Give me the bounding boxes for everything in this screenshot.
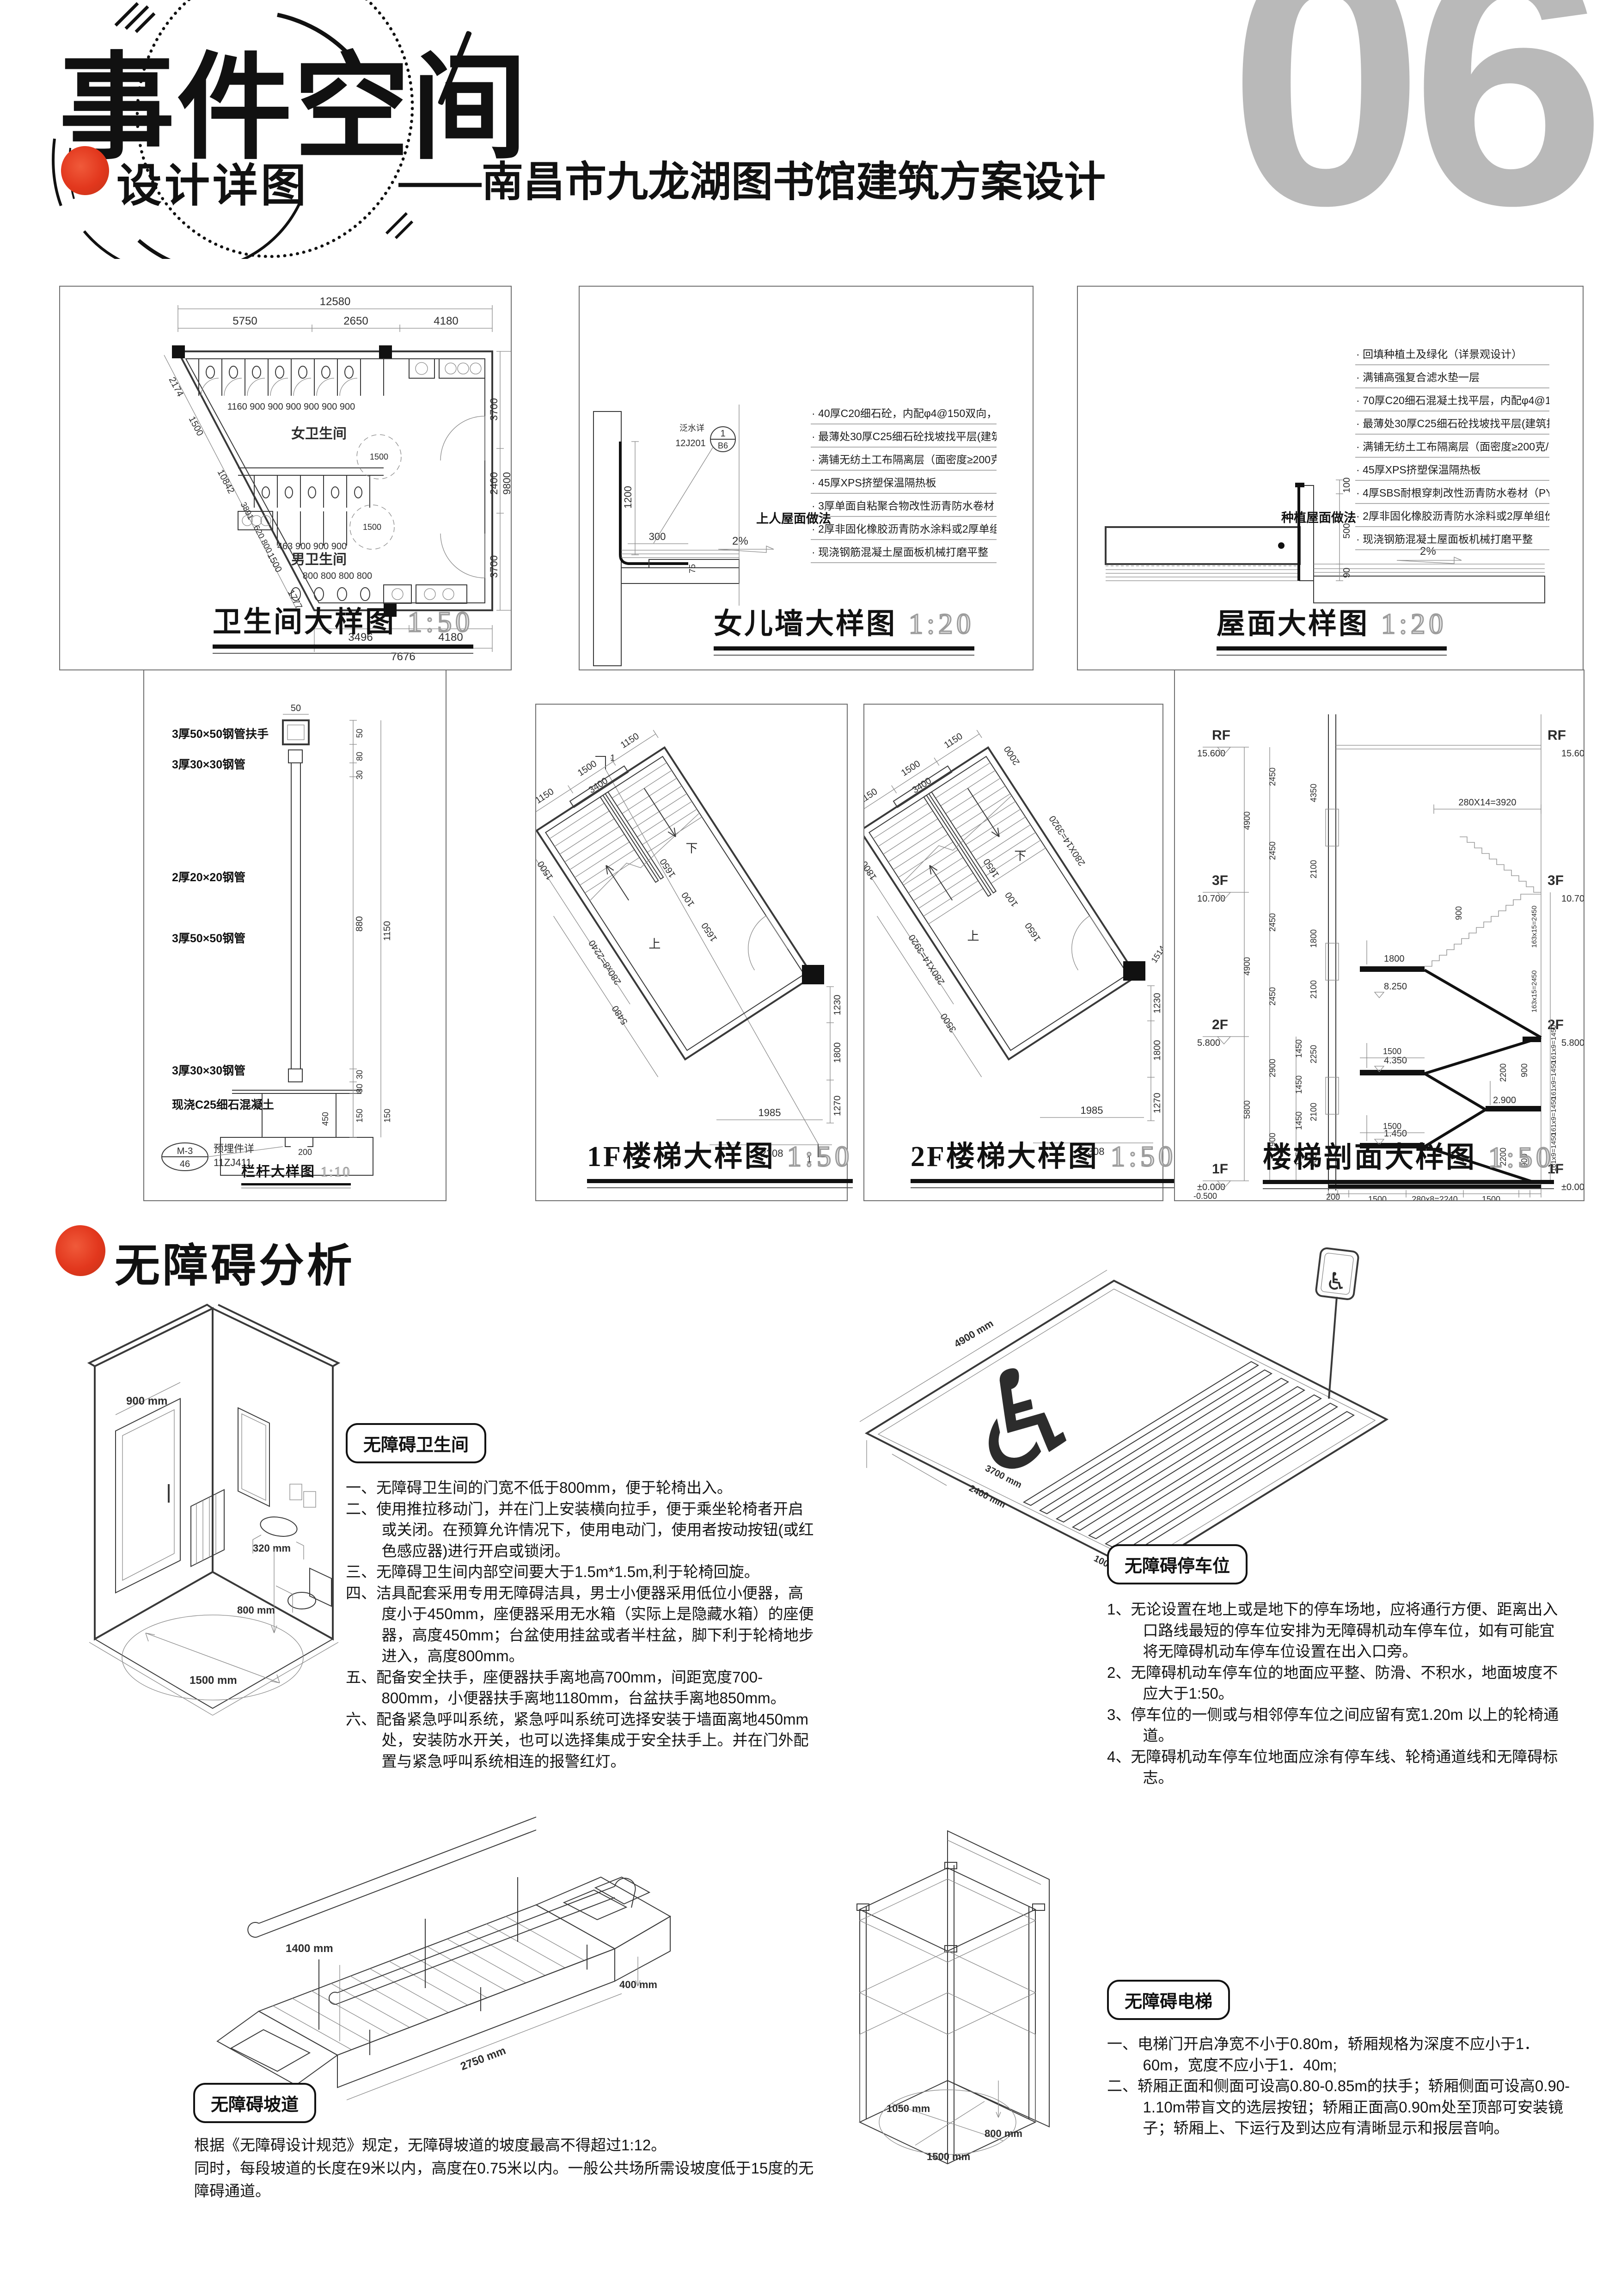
svg-text:1500: 1500	[536, 859, 555, 882]
svg-text:2400: 2400	[488, 472, 500, 495]
svg-text:下: 下	[686, 841, 698, 855]
svg-text:150: 150	[355, 1109, 364, 1123]
svg-text:1985: 1985	[759, 1107, 781, 1118]
railing-label-1: 3厚50×50钢管扶手	[172, 725, 269, 742]
svg-text:1270: 1270	[832, 1096, 843, 1117]
roof-side-label: 种植屋面做法	[1281, 508, 1356, 526]
svg-text:900: 900	[1454, 906, 1463, 920]
svg-text:880: 880	[355, 916, 365, 932]
drawing-frame-stair-1f: 1 1 上 下 1150 1500 1150 3400	[535, 704, 848, 1201]
svg-text:150: 150	[383, 1109, 392, 1123]
ramp-note-line-1: 根据《无障碍设计规范》规定，无障碍坡道的坡度最高不得超过1:12。	[194, 2134, 818, 2157]
svg-text:161x9=1450: 161x9=1450	[1550, 1061, 1558, 1099]
svg-text:1200: 1200	[622, 486, 634, 509]
svg-text:5.800: 5.800	[1561, 1038, 1584, 1048]
svg-text:10842: 10842	[215, 468, 237, 495]
accessible-toilet-isometric: 900 mm 1500 mm 320 mm 800 mm	[76, 1290, 349, 1817]
note-item: 一、电梯门开启净宽不小于0.80m，轿厢规格为深度不应小于1．60m，宽度不应小…	[1107, 2033, 1574, 2075]
section-title-details: 设计详图	[116, 149, 309, 215]
svg-text:3F: 3F	[1212, 873, 1228, 888]
svg-text:1500 mm: 1500 mm	[927, 2151, 970, 2162]
railing-label-2: 3厚30×30钢管	[172, 755, 245, 772]
wheelchair-icon: ♿	[966, 1324, 1088, 1511]
svg-text:1800: 1800	[832, 1043, 843, 1063]
svg-text:200: 200	[298, 1148, 312, 1157]
note-item: 2厚非固化橡胶沥青防水涂料或2厚单组份聚氨酯防水涂料	[1355, 504, 1549, 527]
svg-text:1: 1	[720, 429, 725, 439]
svg-text:2F: 2F	[1212, 1017, 1228, 1032]
note-item: 一、无障碍卫生间的门宽不低于800mm，便于轮椅出入。	[346, 1477, 817, 1498]
svg-text:320 mm: 320 mm	[253, 1542, 291, 1554]
svg-text:1150: 1150	[382, 921, 392, 941]
svg-text:2900: 2900	[1268, 1059, 1277, 1077]
svg-text:2450: 2450	[1268, 987, 1277, 1006]
svg-text:2450: 2450	[1268, 767, 1277, 786]
note-item: 二、使用推拉移动门，并在门上安装横向拉手，便于乘坐轮椅者开启或关闭。在预算允许情…	[346, 1498, 817, 1562]
roof-notes-list: 回填种植土及绿化（详景观设计）满铺高强复合滤水垫一层70厚C20细石混凝土找平层…	[1355, 342, 1549, 550]
note-item: 1、无论设置在地上或是地下的停车场地，应将通行方便、距离出入口路线最短的停车位安…	[1107, 1599, 1569, 1662]
drawing-title-railing: 栏杆大样图1:10	[241, 1160, 351, 1188]
svg-text:1650: 1650	[1023, 921, 1043, 943]
svg-text:1450: 1450	[1294, 1075, 1303, 1094]
svg-text:女卫生间: 女卫生间	[291, 426, 347, 442]
note-item: 四、洁具配套采用专用无障碍洁具，男士小便器采用低位小便器，高度小于450mm，座…	[346, 1583, 817, 1667]
radiator	[191, 1490, 224, 1566]
svg-text:M-3: M-3	[177, 1146, 193, 1156]
svg-text:30: 30	[355, 770, 364, 780]
svg-text:上: 上	[967, 929, 979, 943]
svg-text:1985: 1985	[1081, 1105, 1103, 1116]
svg-text:5480: 5480	[610, 1004, 630, 1026]
cage-posts	[857, 1862, 1045, 2164]
stair-section-drawing: RF15.600 3F10.700 2F5.800 1F±0.000 -0.50…	[1175, 670, 1584, 1200]
svg-text:1500: 1500	[1383, 1122, 1401, 1131]
svg-text:泛水详: 泛水详	[679, 424, 704, 433]
note-item: 回填种植土及绿化（详景观设计）	[1355, 342, 1549, 365]
section-title-accessibility: 无障碍分析	[115, 1229, 355, 1295]
label-accessible-elevator: 无障碍电梯	[1107, 1980, 1230, 2020]
svg-text:90: 90	[1342, 568, 1352, 578]
svg-text:280X14=3920: 280X14=3920	[1458, 798, 1516, 808]
svg-text:1400 mm: 1400 mm	[286, 1942, 333, 1955]
svg-text:1150: 1150	[864, 786, 879, 806]
svg-text:800 mm: 800 mm	[237, 1604, 275, 1616]
svg-text:1500: 1500	[363, 522, 381, 532]
svg-text:280x8=2240: 280x8=2240	[587, 938, 624, 987]
note-item: 40厚C20细石砼，内配φ4@150双向，分隔缝距离≤3m	[811, 401, 997, 424]
drawing-frame-stair-2f: 上 下 1150 1500 1150 3400 2000 280X14=3920…	[863, 704, 1163, 1201]
svg-text:1514: 1514	[1150, 944, 1162, 964]
svg-text:4900 mm: 4900 mm	[952, 1317, 996, 1350]
svg-text:1800: 1800	[1309, 929, 1318, 948]
svg-text:1F: 1F	[1212, 1161, 1228, 1177]
svg-text:1450: 1450	[1294, 1111, 1303, 1130]
svg-text:1650: 1650	[658, 857, 678, 879]
parapet-side-label: 上人屋面做法	[756, 509, 831, 527]
svg-text:3891: 3891	[239, 500, 255, 521]
svg-text:50: 50	[291, 703, 301, 713]
ramp-note-line-2: 同时，每段坡道的长度在9米以内，高度在0.75米以内。一般公共场所需设坡度低于1…	[194, 2157, 818, 2203]
svg-text:5800: 5800	[1242, 1100, 1252, 1119]
svg-text:RF: RF	[1548, 728, 1566, 743]
svg-text:8.250: 8.250	[1384, 982, 1407, 992]
svg-text:280x8=2240: 280x8=2240	[1412, 1195, 1458, 1200]
svg-text:3F: 3F	[1548, 873, 1564, 888]
svg-text:1500: 1500	[576, 759, 599, 779]
note-item: 最薄处30厚C25细石砼找坡找平层(建筑找坡2%)	[811, 424, 997, 448]
svg-text:4900: 4900	[1242, 957, 1252, 976]
note-item: 满铺高强复合滤水垫一层	[1355, 365, 1549, 388]
svg-text:900: 900	[1520, 1063, 1529, 1077]
svg-text:1800: 1800	[1384, 954, 1405, 964]
drawing-frame-toilet-plan: 12580 5750 2650 4180 1160 900 900 900 90…	[59, 286, 512, 670]
svg-text:1500: 1500	[899, 759, 922, 779]
svg-text:12J201: 12J201	[675, 438, 706, 448]
accessible-parking-isometric: ♿ 4900 mm 3700 mm 2400 mm 1000 mm ♿	[832, 1237, 1419, 1579]
toilet	[276, 1568, 331, 1613]
svg-text:±0.000: ±0.000	[1197, 1182, 1225, 1192]
label-accessible-parking: 无障碍停车位	[1107, 1544, 1248, 1584]
drawing-title-parapet: 女儿墙大样图1:20	[714, 600, 974, 656]
accessible-toilet-notes: 一、无障碍卫生间的门宽不低于800mm，便于轮椅出入。二、使用推拉移动门，并在门…	[346, 1477, 817, 1772]
note-item: 最薄处30厚C25细石砼找坡找平层(建筑找坡2%)	[1355, 411, 1549, 435]
svg-text:4350: 4350	[1309, 784, 1318, 802]
drawing-title-toilet-plan: 卫生间大样图1:50	[213, 598, 473, 654]
railing-label-3: 2厚20×20钢管	[172, 868, 245, 885]
svg-text:1270: 1270	[1152, 1093, 1162, 1114]
svg-text:161x9=1450: 161x9=1450	[1550, 1097, 1558, 1136]
svg-text:1500: 1500	[1383, 1047, 1401, 1056]
railing-label-4: 3厚50×50钢管	[172, 929, 245, 946]
stair-1f-drawing: 1 1 上 下 1150 1500 1150 3400	[536, 705, 847, 1200]
svg-text:1500: 1500	[1482, 1195, 1500, 1200]
svg-text:100: 100	[680, 890, 697, 909]
svg-text:50: 50	[355, 729, 364, 738]
svg-text:预埋件详: 预埋件详	[214, 1143, 254, 1154]
railing-label-5: 3厚30×30钢管	[172, 1062, 245, 1078]
note-item: 三、无障碍卫生间内部空间要大于1.5m*1.5m,利于轮椅回旋。	[346, 1561, 817, 1583]
note-item: 现浇钢筋混凝土屋面板机械打磨平整	[1355, 527, 1549, 550]
svg-text:1230: 1230	[832, 995, 843, 1016]
svg-text:10.700: 10.700	[1561, 894, 1584, 904]
svg-text:2200: 2200	[1499, 1063, 1508, 1082]
drawing-title-stair-2f: 2F楼梯大样图1:50	[911, 1133, 1176, 1188]
svg-text:1650: 1650	[982, 857, 1002, 879]
svg-text:2174: 2174	[167, 375, 185, 399]
note-item: 4厚SBS耐根穿刺改性沥青防水卷材（PY类）	[1355, 481, 1549, 504]
svg-text:1800: 1800	[864, 859, 879, 882]
note-item: 五、配备安全扶手，座便器扶手离地高700mm，间距宽度700-800mm，小便器…	[346, 1667, 817, 1709]
svg-text:4180: 4180	[434, 315, 458, 327]
note-item: 二、轿厢正面和侧面可设高0.80-0.85m的扶手；轿厢侧面可设高0.90-1.…	[1107, 2075, 1574, 2139]
svg-text:30: 30	[355, 1070, 364, 1079]
svg-text:400 mm: 400 mm	[619, 1979, 657, 1990]
drawing-frame-parapet: 1200 300 75 2% 1 B6 12J201 泛水详 40厚C20细石砼…	[579, 286, 1034, 670]
note-item: 满铺无纺土工布隔离层（面密度≥200克/平米）	[1355, 435, 1549, 458]
drawing-title-stair-section: 楼梯剖面大样图1:50	[1263, 1134, 1554, 1189]
svg-text:80: 80	[355, 1084, 364, 1093]
svg-text:240: 240	[1529, 1199, 1542, 1200]
svg-text:240: 240	[1336, 1199, 1350, 1200]
svg-text:10.700: 10.700	[1197, 894, 1225, 904]
accessible-elevator-isometric: 1050 mm 1500 mm 800 mm	[832, 1803, 1100, 2242]
railing-label-6: 现浇C25细石混凝土	[172, 1096, 274, 1112]
svg-text:3400: 3400	[587, 776, 610, 796]
note-item: 现浇钢筋混凝土屋面板机械打磨平整	[811, 540, 997, 563]
parking-sign: ♿	[1315, 1247, 1359, 1399]
section-red-stamp-2	[52, 1222, 109, 1279]
svg-text:463 900 900 900: 463 900 900 900	[277, 541, 347, 552]
svg-text:2250: 2250	[1309, 1045, 1318, 1063]
drawing-frame-roof: 100 500 90 2% 回填种植土及绿化（详景观设计）满铺高强复合滤水垫一层…	[1077, 286, 1584, 670]
svg-text:12580: 12580	[320, 295, 351, 308]
svg-text:2000: 2000	[1002, 744, 1022, 767]
svg-text:163x15=2450: 163x15=2450	[1530, 906, 1538, 948]
svg-text:15.600: 15.600	[1197, 749, 1225, 759]
stair-2f-drawing: 上 下 1150 1500 1150 3400 2000 280X14=3920…	[864, 705, 1162, 1200]
svg-text:2.900: 2.900	[1493, 1095, 1516, 1105]
note-item: 2、无障碍机动车停车位的地面应平整、防滑、不积水，地面坡度不应大于1:50。	[1107, 1662, 1569, 1704]
svg-text:2100: 2100	[1309, 860, 1318, 878]
svg-text:5.800: 5.800	[1197, 1038, 1220, 1048]
drawing-frame-railing: 50 50 80 30 880 30 80 150 1150 150 450 2…	[143, 669, 447, 1201]
svg-text:3700: 3700	[488, 398, 500, 421]
accessible-elevator-notes: 一、电梯门开启净宽不小于0.80m，轿厢规格为深度不应小于1．60m，宽度不应小…	[1107, 2033, 1574, 2139]
svg-text:800 800 800 800: 800 800 800 800	[303, 571, 372, 581]
svg-text:46: 46	[180, 1159, 190, 1169]
svg-text:800 mm: 800 mm	[985, 2128, 1022, 2139]
drawing-title-stair-1f: 1F楼梯大样图1:50	[587, 1133, 853, 1188]
svg-text:900 mm: 900 mm	[126, 1395, 167, 1407]
svg-text:300: 300	[649, 531, 666, 542]
svg-text:B6: B6	[718, 441, 728, 450]
drawing-frame-stair-section: RF15.600 3F10.700 2F5.800 1F±0.000 -0.50…	[1174, 669, 1584, 1201]
parapet-notes-list: 40厚C20细石砼，内配φ4@150双向，分隔缝距离≤3m最薄处30厚C25细石…	[811, 401, 997, 563]
svg-text:下: 下	[1014, 849, 1026, 863]
svg-text:1500 mm: 1500 mm	[190, 1674, 237, 1687]
svg-text:3700: 3700	[488, 555, 500, 578]
svg-text:2100: 2100	[1309, 1103, 1318, 1121]
note-item: 满铺无纺土工布隔离层（面密度≥200克/平米）	[811, 448, 997, 471]
svg-text:2%: 2%	[732, 535, 748, 547]
svg-text:1500: 1500	[265, 551, 284, 574]
svg-text:1150: 1150	[619, 731, 641, 750]
svg-text:450: 450	[321, 1112, 330, 1126]
svg-text:1150: 1150	[536, 786, 556, 806]
svg-text:280X14=3920: 280X14=3920	[907, 933, 947, 987]
handrails	[248, 1817, 635, 2055]
svg-text:163x15=2450: 163x15=2450	[1530, 970, 1538, 1013]
svg-text:-0.500: -0.500	[1193, 1191, 1217, 1200]
svg-text:100: 100	[1342, 478, 1352, 493]
accessible-ramp-notes: 根据《无障碍设计规范》规定，无障碍坡道的坡度最高不得超过1:12。 同时，每段坡…	[194, 2134, 818, 2203]
svg-text:9800: 9800	[501, 472, 511, 495]
svg-text:1160 900 900 900 900: 1160 900 900 900 900 900 900	[227, 402, 355, 412]
svg-text:1500: 1500	[187, 415, 205, 438]
svg-text:4900: 4900	[1242, 811, 1252, 830]
svg-text:2750 mm: 2750 mm	[459, 2044, 508, 2073]
svg-text:161x9=1450: 161x9=1450	[1550, 1025, 1558, 1063]
note-item: 3厚单面自粘聚合物改性沥青防水卷材（PY类）	[811, 494, 997, 517]
label-accessible-ramp: 无障碍坡道	[193, 2083, 316, 2123]
svg-text:3400: 3400	[911, 776, 933, 796]
label-accessible-toilet: 无障碍卫生间	[346, 1423, 486, 1463]
svg-text:1050 mm: 1050 mm	[887, 2103, 930, 2114]
svg-text:男卫生间: 男卫生间	[291, 552, 347, 567]
presentation-board: 06 事件空间 ——南昌市九龙湖图书馆建筑方案设计 设计详图 12580 575…	[0, 0, 1621, 2296]
svg-text:2650: 2650	[343, 315, 368, 327]
svg-text:1450: 1450	[1294, 1039, 1303, 1058]
wheelchair-icon: ♿	[1324, 1267, 1349, 1296]
svg-text:5750: 5750	[232, 315, 257, 327]
note-item: 45厚XPS挤塑保温隔热板	[1355, 458, 1549, 481]
note-item: 45厚XPS挤塑保温隔热板	[811, 471, 997, 494]
svg-text:RF: RF	[1212, 728, 1230, 743]
drawing-title-roof: 屋面大样图1:20	[1217, 600, 1447, 656]
svg-text:2450: 2450	[1268, 841, 1277, 860]
accessible-parking-notes: 1、无论设置在地上或是地下的停车场地，应将通行方便、距离出入口路线最短的停车位安…	[1107, 1599, 1569, 1788]
svg-text:1800: 1800	[1152, 1040, 1162, 1061]
svg-text:80: 80	[355, 752, 364, 761]
svg-text:3500: 3500	[939, 1011, 959, 1034]
note-item: 2厚非固化橡胶沥青防水涂料或2厚单组份聚氨酯防水涂料	[811, 517, 997, 540]
svg-text:±0.000: ±0.000	[1561, 1182, 1584, 1192]
svg-text:1150: 1150	[942, 731, 965, 750]
svg-text:2450: 2450	[1268, 913, 1277, 932]
svg-text:1230: 1230	[1152, 993, 1162, 1014]
svg-text:75: 75	[688, 564, 697, 573]
note-item: 70厚C20细石混凝土找平层，内配φ4@150钢筋网片	[1355, 388, 1549, 411]
board-subtitle: ——南昌市九龙湖图书馆建筑方案设计	[398, 148, 1106, 208]
svg-text:上: 上	[648, 937, 661, 951]
note-item: 3、停车位的一侧或与相邻停车位之间应留有宽1.20m 以上的轮椅通道。	[1107, 1704, 1569, 1746]
svg-text:15.600: 15.600	[1561, 749, 1584, 759]
svg-text:1500: 1500	[370, 452, 388, 461]
svg-text:100: 100	[1003, 890, 1021, 909]
svg-text:1500: 1500	[1368, 1195, 1387, 1200]
svg-text:4.350: 4.350	[1384, 1056, 1407, 1066]
note-item: 4、无障碍机动车停车位地面应涂有停车线、轮椅通道线和无障碍标志。	[1107, 1746, 1569, 1788]
svg-text:2100: 2100	[1309, 980, 1318, 999]
